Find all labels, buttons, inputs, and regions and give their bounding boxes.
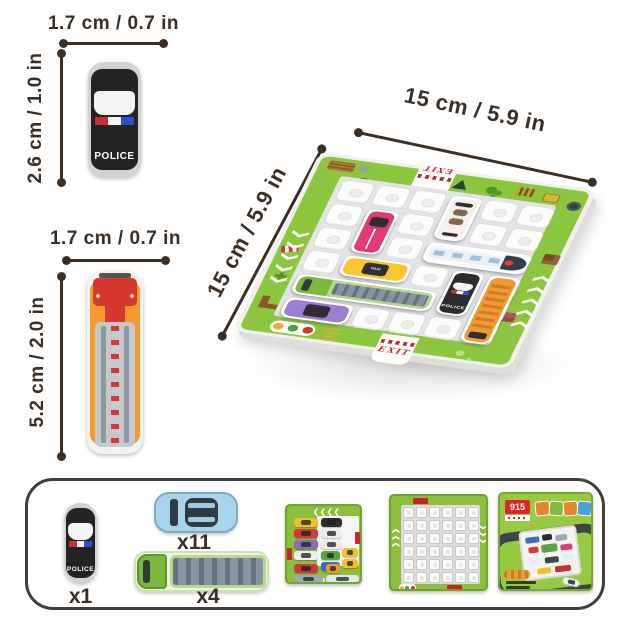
- grid-card-chevrons-left: ❮❮❮: [392, 528, 400, 549]
- board-cell: [406, 189, 448, 214]
- firetruck-cab: [93, 278, 138, 305]
- police-label: POLICE: [64, 566, 97, 573]
- contents-panel: POLICE x1 x11 x4 ❮❮❮❮ ❯❯❯❯ ❮❮❮ ❮❮❮: [25, 478, 605, 610]
- police-lightbar: [95, 117, 133, 125]
- grid-card-traffic-light: [399, 584, 416, 591]
- lane-chevron: ❮: [278, 251, 298, 262]
- layout-card-piece: [321, 540, 342, 549]
- firetruck-ladder-rungs: [111, 326, 119, 443]
- grid-card-cell: [442, 559, 453, 570]
- stone-decoration: [357, 166, 371, 173]
- grid-card-cell: [442, 520, 453, 531]
- layout-card-piece: [294, 575, 323, 583]
- grid-card-cell: [455, 520, 466, 531]
- grid-card-cell: [455, 546, 466, 557]
- grid-card-cell: [403, 546, 414, 557]
- bus-stop-sign-decoration: [541, 193, 560, 203]
- grid-card-cell: [416, 572, 427, 583]
- police-width-line: [63, 42, 164, 45]
- grid-card-cell: [468, 572, 479, 583]
- grid-card-cell: [416, 559, 427, 570]
- lane-chevron: ❮: [289, 229, 309, 240]
- police-lightbar: [69, 541, 93, 547]
- board-cell: [383, 236, 425, 261]
- grid-card-cell: [403, 559, 414, 570]
- board-cell: [478, 199, 520, 224]
- grid-card-cell: [416, 533, 427, 544]
- board-cell: [300, 249, 342, 274]
- board-cell: [467, 223, 509, 248]
- police-height-label: 2.6 cm / 1.0 in: [25, 52, 47, 183]
- layout-card-piece: [294, 540, 318, 549]
- grid-card-cell: [429, 559, 440, 570]
- firetruck-neck: [105, 304, 125, 324]
- grid-card-cell: [455, 559, 466, 570]
- grid-card-cell: [442, 533, 453, 544]
- layout-card-piece: [321, 518, 342, 527]
- layout-card-piece: [294, 518, 318, 527]
- grid-card-cell: [429, 507, 440, 518]
- grid-card-exit-bottom: [447, 585, 462, 591]
- board-cell: [503, 228, 545, 253]
- firetruck-width-label: 1.7 cm / 0.7 in: [38, 228, 193, 250]
- box-card: 915: [498, 492, 593, 591]
- layout-card-piece: [342, 559, 358, 568]
- manhole-decoration: [565, 201, 583, 212]
- police-car-piece: POLICE: [88, 62, 141, 177]
- crosswalk-top-decoration: [515, 187, 537, 197]
- layout-card-chevrons-top: ❮❮❮❮: [313, 508, 340, 516]
- lane-chevron: ❮: [511, 319, 531, 330]
- grid-card-cell: [403, 520, 414, 531]
- grid-card-cell: [403, 572, 414, 583]
- lane-chevron: ❮: [522, 297, 542, 308]
- grid-card-cell: [429, 520, 440, 531]
- layout-card-exit-left: [287, 548, 292, 560]
- board-cell: [334, 180, 376, 205]
- layout-card-piece: [342, 548, 358, 557]
- box-card-bus: [504, 570, 530, 579]
- layout-card-exit-right: [355, 532, 360, 544]
- board-cell: [408, 264, 450, 289]
- traffic-light: [268, 319, 318, 336]
- grid-card-cell: [455, 507, 466, 518]
- grid-card-cell: [429, 533, 440, 544]
- traffic-light-amber: [271, 322, 284, 330]
- box-card-badge: 915: [505, 500, 530, 514]
- traffic-light-red: [301, 326, 314, 334]
- clover-decoration: [484, 186, 499, 195]
- board-cell: [385, 311, 427, 336]
- grid-card-cell: [468, 533, 479, 544]
- grid-card-cell: [468, 520, 479, 531]
- grid-card-cell: [455, 533, 466, 544]
- grid-card-cell: [468, 507, 479, 518]
- grid-card-cell: [429, 546, 440, 557]
- board-cell: [311, 226, 353, 251]
- grid-card: ❮❮❮ ❮❮❮: [389, 494, 488, 591]
- police-width-label: 1.7 cm / 0.7 in: [36, 13, 191, 35]
- parcel-decoration: [541, 254, 561, 266]
- board-cell: [370, 184, 412, 209]
- firetruck-height-label: 5.2 cm / 2.0 in: [27, 296, 49, 427]
- blue-car-windshield: [170, 499, 179, 526]
- police-windshield: [68, 523, 93, 540]
- lane-chevron: ❮: [272, 263, 292, 274]
- box-card-text-line1: [506, 581, 536, 584]
- layout-card-piece: [326, 575, 359, 583]
- bench-decoration: [327, 160, 357, 172]
- grid-card-cell: [416, 520, 427, 531]
- grid-card-cell: [403, 533, 414, 544]
- layout-card-piece: [321, 551, 340, 560]
- grid-card-cell: [403, 507, 414, 518]
- germ-decoration: [455, 350, 466, 357]
- police-count: x1: [64, 585, 97, 609]
- board-cell: [323, 203, 365, 228]
- layout-card-piece: [326, 564, 340, 573]
- layout-card-piece: [321, 529, 342, 538]
- board-cell: [514, 204, 556, 229]
- traffic-light-green: [286, 324, 299, 332]
- blue-car-roof: [185, 498, 219, 528]
- box-card-title-logo: [535, 501, 591, 516]
- layout-card-piece: [294, 564, 318, 573]
- grid-card-cell: [442, 507, 453, 518]
- layout-card-piece: [294, 529, 318, 538]
- police-label: POLICE: [88, 151, 141, 162]
- board-width-label: 15 cm / 5.9 in: [355, 72, 595, 147]
- grid-card-cell: [416, 507, 427, 518]
- board-cell: [395, 213, 437, 238]
- police-windshield: [94, 91, 134, 115]
- crosswalk-bottom-decoration: [320, 326, 342, 342]
- contents-police-car: POLICE: [64, 503, 97, 583]
- firetruck-width-line: [66, 259, 166, 262]
- contents-blue-car: [154, 492, 238, 533]
- fire-truck-piece: [87, 271, 143, 454]
- board-cell: [349, 306, 391, 331]
- grid-card-cell: [442, 572, 453, 583]
- grid-card-chevrons-right: ❮❮❮: [479, 523, 487, 544]
- truck-cab: [137, 554, 167, 590]
- layout-card: ❮❮❮❮ ❯❯❯❯: [285, 504, 362, 584]
- lane-chevron: ❮: [516, 308, 536, 319]
- grid-card-exit-top: [413, 498, 428, 504]
- truck-bed: [170, 555, 266, 588]
- grid-card-cell: [455, 572, 466, 583]
- lane-chevron: ❮: [267, 274, 287, 285]
- grid-card-cell: [468, 546, 479, 557]
- box-card-badge-subtext: [505, 515, 530, 521]
- lane-chevron: ❮: [533, 274, 553, 285]
- box-card-text-line2: [506, 586, 530, 589]
- board-cell: [421, 316, 463, 341]
- police-height-line: [60, 53, 63, 183]
- grid-card-cell: [442, 546, 453, 557]
- grid-card-cell: [429, 572, 440, 583]
- truck-count: x4: [168, 585, 248, 609]
- grid-card-cell: [468, 559, 479, 570]
- tree-decoration: [451, 179, 470, 190]
- lane-chevron: ❮: [528, 285, 548, 296]
- grid-card-cell: [416, 546, 427, 557]
- firetruck-height-line: [60, 276, 63, 457]
- layout-card-piece: [294, 551, 318, 560]
